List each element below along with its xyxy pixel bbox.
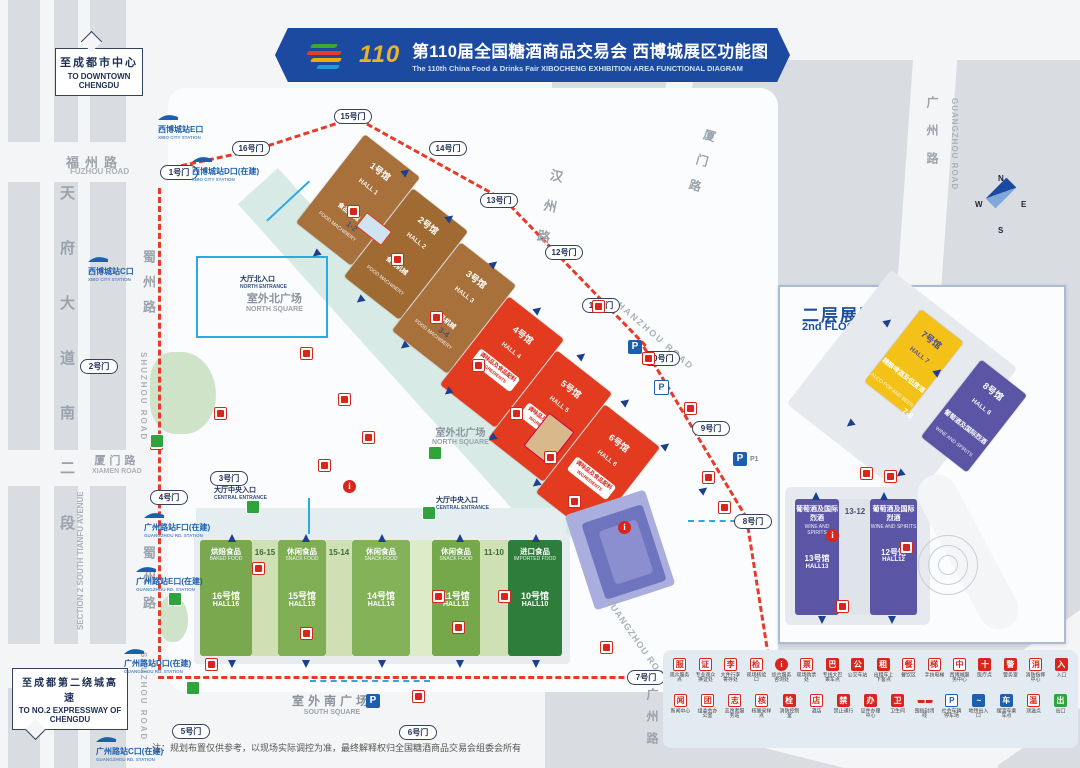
legend-item: 店酒店: [804, 690, 829, 722]
metro-swoosh-icon: [192, 154, 212, 163]
connector-label: 11-10: [481, 548, 507, 557]
exit-icon: [428, 446, 442, 460]
service-icon: [702, 471, 715, 484]
corridor-15-14: [326, 540, 352, 656]
service-icon: [338, 393, 351, 406]
legend-item: 梯手扶电梯: [922, 654, 947, 686]
city-block: [8, 182, 40, 450]
legend-icon: 车: [1000, 694, 1013, 707]
info-icon: i: [618, 521, 631, 534]
service-icon: [718, 501, 731, 514]
legend-panel: 服观众服务点 证专业观众换证处 李大件行李寄存处 检现场核验口 i综合服务咨询处…: [663, 650, 1078, 748]
metro-exit-e: 西博城站E口XIBO CITY STATION: [158, 108, 244, 140]
exhibition-map: 1号馆HALL 1 食品机械FOOD MACHINERY 2号馆HALL 2 食…: [0, 0, 1080, 768]
legend-row-1: 服观众服务点 证专业观众换证处 李大件行李寄存处 检现场核验口 i综合服务咨询处…: [663, 654, 1078, 686]
legend-icon: 餐: [902, 658, 915, 671]
service-icon: [252, 562, 265, 575]
legend-item: 李大件行李寄存处: [718, 654, 743, 686]
legend-item: 围挡封闭线: [912, 690, 937, 722]
road-label-tianfu: 天府大道南二段: [56, 185, 77, 605]
legend-icon: 栓: [783, 694, 796, 707]
direction-arrow-icon: [228, 660, 236, 668]
service-icon: [362, 431, 375, 444]
legend-icon: 禁: [837, 694, 850, 707]
legend-item: 餐餐饮区: [896, 654, 921, 686]
gate-14: 14号门: [429, 141, 467, 156]
service-icon: [568, 495, 581, 508]
direction-arrow-icon: [888, 616, 896, 624]
gate-9: 9号门: [692, 421, 730, 436]
legend-row-2: 闻新闻中心 团组委会办公室 志志愿者服务站 核核酸采样点 栓消防控制室 店酒店 …: [663, 690, 1078, 722]
legend-icon: 入: [1055, 658, 1068, 671]
central-entrance-label: 大厅中央入口CENTRAL ENTRANCE: [436, 497, 489, 511]
city-block: [90, 486, 126, 644]
legend-item: 十医疗点: [972, 654, 997, 686]
legend-item: 证专业观众换证处: [693, 654, 718, 686]
gate-7: 7号门: [627, 670, 665, 685]
downtown-sign: 至成都市中心 TO DOWNTOWN CHENGDU: [55, 48, 143, 96]
central-entrance-label-w: 大厅中央入口CENTRAL ENTRANCE: [214, 487, 267, 501]
legend-icon: 团: [701, 694, 714, 707]
expressway-sign: 至成都第二绕城高速 TO NO.2 EXPRESSWAY OF CHENGDU: [12, 668, 128, 730]
direction-arrow-icon: [812, 492, 820, 500]
legend-icon: 办: [864, 694, 877, 707]
direction-arrow-icon: [302, 660, 310, 668]
city-block: [8, 0, 40, 142]
service-icon: [860, 467, 873, 480]
legend-icon: P: [945, 694, 958, 707]
service-icon: [544, 451, 557, 464]
hall-16: 烘焙食品BAKED FOOD 16号馆HALL16: [200, 540, 252, 656]
service-icon: [642, 352, 655, 365]
legend-item: 消消防指挥中心: [1023, 654, 1048, 686]
metro-swoosh-icon: [88, 254, 108, 263]
direction-arrow-icon: [880, 492, 888, 500]
north-square-label-2: 室外北广场 NORTH SQUARE: [432, 424, 489, 446]
road-label-fuzhou-en: FUZHOU ROAD: [70, 167, 129, 176]
city-block: [8, 486, 40, 644]
legend-icon: 闻: [674, 694, 687, 707]
road-label-shuzhou-en: SHUZHOU ROAD: [139, 352, 148, 441]
legend-icon: 核: [755, 694, 768, 707]
gate-2: 2号门: [80, 359, 118, 374]
parking-p1-label: P1: [750, 456, 759, 463]
logo-stripe: [316, 65, 340, 69]
legend-icon: 梯: [928, 658, 941, 671]
legend-item: 卫卫生间: [885, 690, 910, 722]
metro-exit-d: 西博城站D口(在建)XIBO CITY STATION: [192, 150, 278, 182]
legend-icon: 志: [728, 694, 741, 707]
logo-110: 110: [359, 41, 400, 69]
direction-arrow-icon: [456, 660, 464, 668]
second-floor-inset: 二层展区 2nd FLOOR 7号馆HALL 7 精酿啤酒及低度酒ALCO-PO…: [778, 285, 1066, 644]
logo-stripe: [310, 58, 342, 62]
service-icon: [214, 407, 227, 420]
south-square-label: 室外南广场 SOUTH SQUARE: [292, 692, 372, 716]
hall-number: 1号馆: [368, 161, 392, 183]
direction-arrow-icon: [302, 534, 310, 542]
logo-stripe: [306, 51, 342, 55]
legend-icon: 证: [699, 658, 712, 671]
corridor-16-15: [252, 540, 278, 656]
road-label-guangzhou-ne-en: GUANGZHOU ROAD: [950, 98, 959, 190]
city-block: [90, 182, 126, 450]
hall-14: 休闲食品SNACK FOOD 14号馆HALL14: [352, 540, 410, 656]
connector-label: 16-15: [253, 548, 277, 557]
legend-icon: 店: [810, 694, 823, 707]
legend-icon: 卫: [891, 694, 904, 707]
legend-item: P社会车辆停车场: [939, 690, 964, 722]
direction-arrow-icon: [456, 534, 464, 542]
service-icon: [432, 590, 445, 603]
direction-arrow-icon: [378, 660, 386, 668]
gate-15: 15号门: [334, 109, 372, 124]
metro-swoosh-icon: [124, 646, 144, 655]
legend-icon: 公: [851, 658, 864, 671]
legend-icon: 检: [750, 658, 763, 671]
legend-icon: 温: [1027, 694, 1040, 707]
parking-icon: P: [366, 694, 380, 708]
legend-item: 车摆渡车乘车点: [994, 690, 1019, 722]
legend-icon: 中: [953, 658, 966, 671]
direction-arrow-icon: [818, 616, 826, 624]
service-icon: [900, 541, 913, 554]
legend-icon: 消: [1029, 658, 1042, 671]
gate-3: 3号门: [210, 471, 248, 486]
legend-icon: 巴: [826, 658, 839, 671]
corridor-13-12: [839, 499, 870, 615]
legend-item: 出出口: [1048, 690, 1073, 722]
service-icon: [452, 621, 465, 634]
metro-exit-gf: 广州路站F口(在建)GUANGZHOU RD. STATION: [144, 506, 230, 538]
north-entrance-label: 大厅北入口NORTH ENTRANCE: [240, 276, 287, 290]
legend-icon: 租: [877, 658, 890, 671]
legend-item: 租出租车上下客点: [871, 654, 896, 686]
exit-icon: [150, 434, 164, 448]
service-icon: [391, 253, 404, 266]
legend-icon: 出: [1054, 694, 1067, 707]
legend-item: 办证件办理中心: [858, 690, 883, 722]
ring-decor: [938, 555, 958, 575]
parking-icon: P: [733, 452, 747, 466]
legend-item: 栓消防控制室: [777, 690, 802, 722]
legend-item: ~地铁出入口: [966, 690, 991, 722]
legend-item: 志志愿者服务站: [722, 690, 747, 722]
legend-icon: 警: [1004, 658, 1017, 671]
exit-icon: [186, 681, 200, 695]
map-title-en: The 110th China Food & Drinks Fair XIBOC…: [412, 64, 768, 73]
title-banner: 110 第110届全国糖酒商品交易会 西博城展区功能图 The 110th Ch…: [275, 28, 790, 82]
parking-icon: P: [628, 340, 642, 354]
road-label-tianfu-en: SECTION 2 SOUTH TIANFU AVENUE: [76, 491, 85, 630]
legend-item: 禁禁止通行: [831, 690, 856, 722]
service-icon: [412, 690, 425, 703]
exit-icon: [168, 592, 182, 606]
shuttle-route: [310, 680, 430, 682]
legend-item: 温测温点: [1021, 690, 1046, 722]
legend-item: 巴专线大巴乘车点: [820, 654, 845, 686]
legend-item: 服观众服务点: [667, 654, 692, 686]
service-icon: [300, 347, 313, 360]
service-icon: [684, 402, 697, 415]
legend-item: 票现场购票处: [794, 654, 819, 686]
exit-icon: [246, 500, 260, 514]
service-icon: [600, 641, 613, 654]
metro-exit-c: 西博城站C口XIBO CITY STATION: [88, 250, 174, 282]
road-label-guangzhou-s: 广州路: [644, 688, 661, 754]
gate-13: 13号门: [480, 193, 518, 208]
metro-swoosh-icon: [158, 112, 178, 121]
legend-item: i综合服务咨询处: [769, 654, 794, 686]
legend-icon: 票: [800, 658, 813, 671]
map-title-cn: 第110届全国糖酒商品交易会 西博城展区功能图: [412, 38, 768, 62]
parking-icon: P: [654, 380, 669, 395]
service-icon: [498, 590, 511, 603]
footnote: 注：规划布置仅供参考，以现场实际调控为准，最终解释权归全国糖酒商品交易会组委会所…: [152, 741, 521, 754]
road-label-guangzhou-ne: 广州路: [924, 96, 941, 180]
city-block: [1064, 250, 1080, 650]
legend-icon: ~: [972, 694, 985, 707]
direction-arrow-icon: [532, 534, 540, 542]
gate-12: 12号门: [545, 245, 583, 260]
legend-item: 入入口: [1049, 654, 1074, 686]
compass: N W E S: [975, 178, 1027, 236]
gate-6: 6号门: [399, 725, 437, 740]
legend-item: 检现场核验口: [744, 654, 769, 686]
north-square-label: 室外北广场 NORTH SQUARE: [246, 290, 303, 313]
connector-label: 15-14: [327, 548, 351, 557]
legend-icon: [917, 700, 933, 703]
service-icon: [347, 205, 360, 218]
service-icon: [592, 300, 605, 313]
service-icon: [472, 359, 485, 372]
direction-arrow-icon: [228, 534, 236, 542]
metro-swoosh-icon: [136, 564, 156, 573]
legend-item: 中西博城服务中心: [947, 654, 972, 686]
service-icon: [430, 311, 443, 324]
metro-swoosh-icon: [144, 510, 164, 519]
legend-icon: 李: [724, 658, 737, 671]
logo-stripe: [310, 44, 338, 48]
hall-12: 葡萄酒及国际烈酒WINE AND SPIRITS 12号馆HALL12: [870, 499, 917, 615]
walkway: [410, 540, 432, 656]
connector-label: 13-12: [840, 507, 870, 516]
road-label-xiamen-w: 厦门路 XIAMEN ROAD: [92, 452, 142, 475]
legend-item: 警警务室: [998, 654, 1023, 686]
service-icon: [836, 600, 849, 613]
info-icon: i: [343, 480, 356, 493]
hall-13: 葡萄酒及国际烈酒WINE AND SPIRITS 13号馆HALL13: [795, 499, 839, 615]
legend-item: 团组委会办公室: [695, 690, 720, 722]
legend-icon: i: [775, 658, 788, 671]
legend-icon: 服: [673, 658, 686, 671]
gate-8: 8号门: [734, 514, 772, 529]
info-icon: i: [826, 529, 839, 542]
exit-icon: [422, 506, 436, 520]
service-icon: [205, 658, 218, 671]
service-icon: [318, 459, 331, 472]
direction-arrow-icon: [532, 660, 540, 668]
direction-arrow-icon: [378, 534, 386, 542]
service-icon: [300, 627, 313, 640]
legend-item: 闻新闻中心: [668, 690, 693, 722]
legend-item: 核核酸采样点: [749, 690, 774, 722]
metro-exit-ge: 广州路站E口(在建)GUANGZHOU RD. STATION: [136, 560, 222, 592]
legend-item: 公公交车站: [845, 654, 870, 686]
hall-10: 进口食品IMPORTED FOOD 10号馆HALL10: [508, 540, 562, 656]
metro-exit-gd: 广州路站D口(在建)GUANGZHOU RD. STATION: [124, 642, 210, 674]
service-icon: [510, 407, 523, 420]
metro-swoosh-icon: [96, 734, 116, 743]
legend-icon: 十: [978, 658, 991, 671]
gate-4: 4号门: [150, 490, 188, 505]
service-icon: [884, 470, 897, 483]
